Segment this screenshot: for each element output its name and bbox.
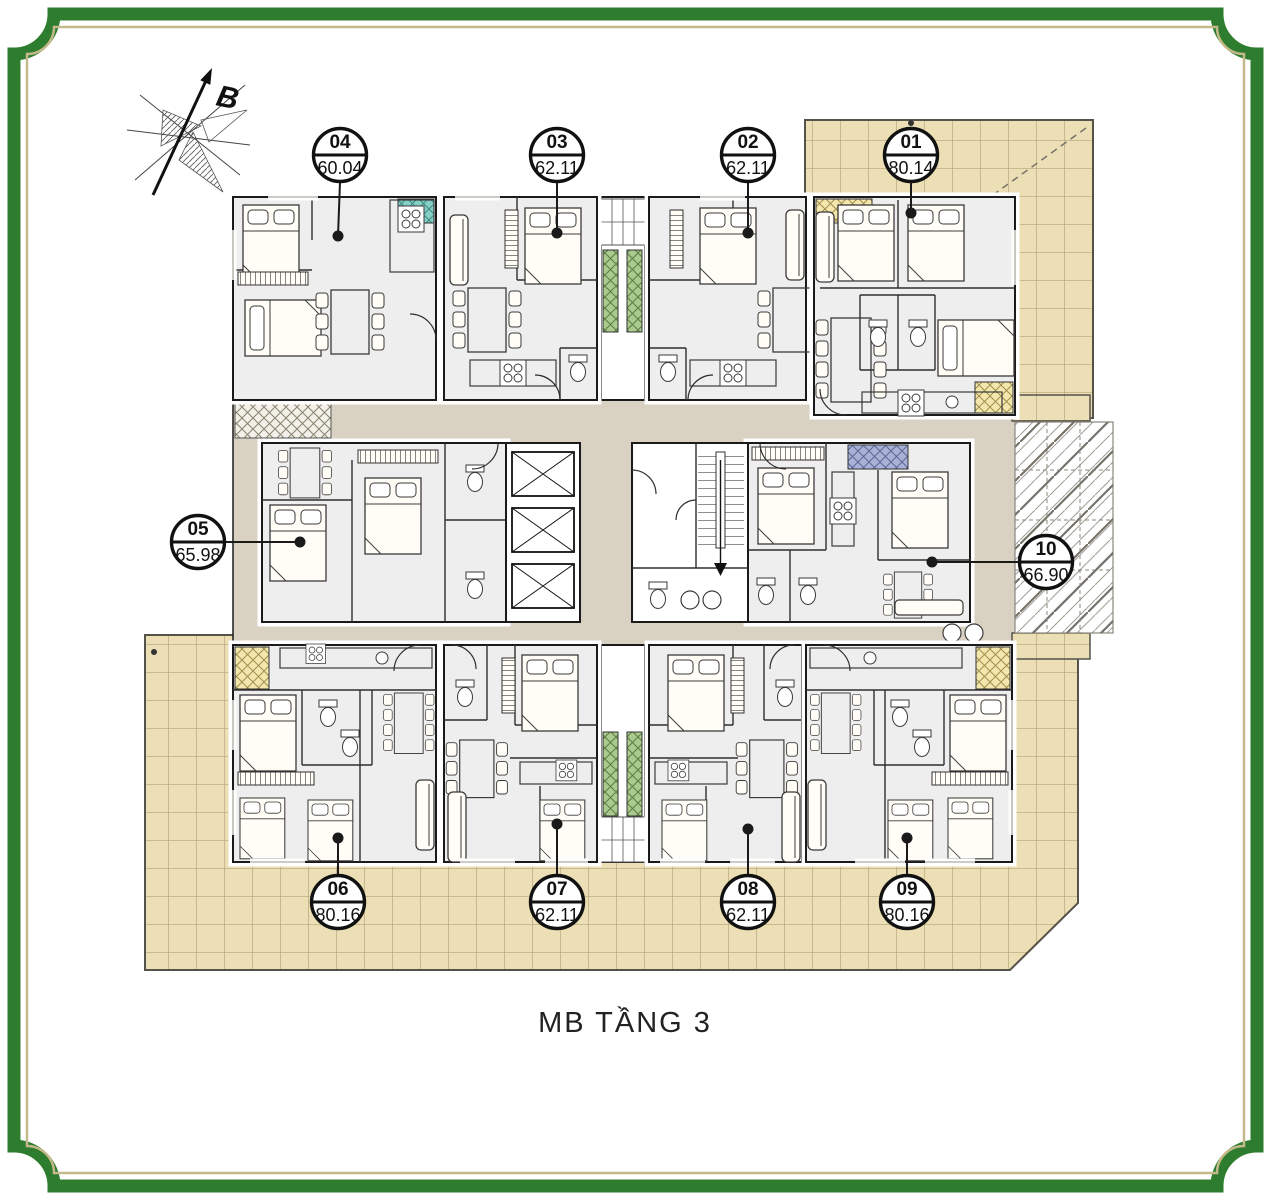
unit-marker-10: 10 66.90 [1020,536,1073,589]
unit-area: 62.11 [535,158,579,178]
north-label: B [214,80,242,117]
unit-03-region [444,197,597,400]
unit-area: 80.16 [315,905,360,925]
north-arrow: B [127,68,250,195]
unit-number: 03 [546,132,567,153]
elevator-core [506,443,580,622]
unit-area: 80.14 [888,158,933,178]
unit-marker-06: 06 80.16 [312,876,365,929]
unit-07-region [444,645,597,862]
unit-marker-02: 02 62.11 [722,129,775,182]
unit-area: 62.11 [535,905,579,925]
right-link-terrace-top [1012,395,1090,421]
unit-09-region [806,645,1012,862]
unit-marker-05: 05 65.98 [172,516,225,569]
unit-area: 65.98 [175,545,220,565]
unit-area: 62.11 [726,905,770,925]
lightwell-bottom [601,645,645,862]
unit-number: 09 [896,879,917,900]
unit-number: 05 [187,519,209,540]
unit-04-region [233,197,436,400]
unit-number: 04 [329,132,351,153]
unit-area: 62.11 [726,158,770,178]
unit-area: 80.16 [884,905,929,925]
lightwell-top [601,197,645,400]
unit-08-region [649,645,802,862]
unit-number: 01 [900,132,922,153]
ledge-crosshatch [235,404,331,438]
unit-10-region [748,443,970,622]
plan-title: MB TẦNG 3 [538,1005,712,1039]
unit-number: 02 [737,132,758,153]
elevator-shaft [512,508,574,552]
central-stair-core [632,443,748,622]
unit-06-region [233,644,436,862]
unit-marker-01: 01 80.14 [885,129,938,182]
unit-01-region [814,197,1015,416]
unit-number: 06 [327,879,348,900]
floor-plan-page: 04 60.04 03 62.11 02 62.11 01 80.14 05 6… [0,0,1271,1200]
right-link-terrace-bottom [1012,633,1090,659]
unit-05-region [262,443,506,622]
unit-area: 60.04 [317,158,362,178]
unit-marker-04: 04 60.04 [314,129,367,182]
unit-number: 10 [1035,539,1056,560]
unit-marker-03: 03 62.11 [531,129,584,182]
unit-area: 66.90 [1023,565,1068,585]
unit-marker-09: 09 80.16 [881,876,934,929]
elevator-shaft [512,564,574,608]
unit-02-region [649,197,826,400]
adjacent-hatched-zone [1015,422,1113,633]
unit-marker-07: 07 62.11 [531,876,584,929]
unit-marker-08: 08 62.11 [722,876,775,929]
unit-number: 08 [737,879,758,900]
unit-number: 07 [546,879,567,900]
elevator-shaft [512,452,574,496]
